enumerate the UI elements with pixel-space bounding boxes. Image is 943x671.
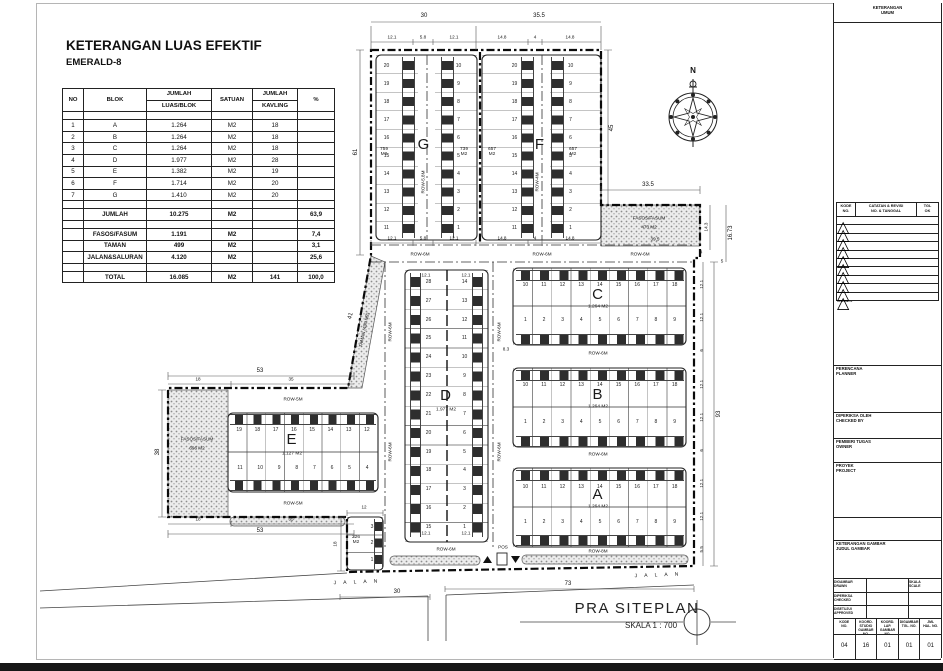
houses-a-bottom <box>516 535 684 546</box>
legend-title: KETERANGAN LUAS EFEKTIF <box>66 38 262 53</box>
dim-top-g: 30 <box>421 13 428 19</box>
row-label: ROW-6M <box>389 442 394 461</box>
dim-e-35b: 35 <box>288 518 293 523</box>
dim-right-93: 93 <box>716 411 722 418</box>
lot-number: 13 <box>578 485 584 490</box>
tb-header: KETERANGAN UMUM <box>834 5 941 15</box>
lot-number: 8 <box>457 100 460 105</box>
lot-number: 18 <box>672 383 678 388</box>
lot-number: 9 <box>463 374 466 379</box>
lot-number: 21 <box>426 412 432 417</box>
dim-label: 6 <box>700 449 705 452</box>
lot-number: 15 <box>616 485 622 490</box>
lot-number: 13 <box>384 190 390 195</box>
lot-number: 4 <box>580 318 583 323</box>
lot-number: 12 <box>560 283 566 288</box>
lots-e-bottom: 1110987654 <box>230 462 376 474</box>
bottom-edge-bar <box>0 663 943 671</box>
lot-number: 4 <box>580 420 583 425</box>
row-label: ROW-6M <box>389 322 394 341</box>
lot-number: 19 <box>426 450 432 455</box>
lots-a-bottom: 123456789 <box>516 516 684 528</box>
dim-e-top-53: 53 <box>257 368 264 374</box>
lot-number: 25 <box>426 336 432 341</box>
grid-row-diperiksa: DIPERIKSACHECKED <box>834 592 941 606</box>
col-no: NO <box>63 89 84 112</box>
revision-row: △ <box>837 266 938 274</box>
lot-number: 11 <box>541 383 546 388</box>
lot-number: 14 <box>384 172 390 177</box>
lot-number: 1 <box>457 226 460 231</box>
lot-number: 9 <box>278 466 281 471</box>
table-row: JALAN&SALURAN4.120 M225,6 <box>63 252 335 264</box>
lot-number: 16 <box>634 383 640 388</box>
dim-8-3: 8.3 <box>503 348 509 353</box>
lot-number: 7 <box>313 466 316 471</box>
lot-number: 7 <box>636 420 639 425</box>
dim-39-5: 39.5 <box>651 238 660 243</box>
col-satuan: SATUAN <box>212 89 253 112</box>
siteplan-sheet: KETERANGAN LUAS EFEKTIF EMERALD-8 NO BLO… <box>0 0 943 671</box>
lot-number: 2 <box>543 318 546 323</box>
area-g1: 759 M2 <box>377 147 391 157</box>
revision-row: △ <box>837 250 938 258</box>
lot-number: 7 <box>636 318 639 323</box>
dim-label: 12.1 <box>700 313 705 322</box>
lots-c-bottom: 123456789 <box>516 314 684 326</box>
table-row: 4D1.977 M228 <box>63 154 335 166</box>
dim-sub: 5.8 <box>420 36 426 41</box>
row-label: ROW-6M <box>588 352 607 357</box>
codes-header-cell: DIGAMBARTGL. NO. <box>899 619 921 635</box>
codes-value-cell: 01 <box>920 635 941 659</box>
dim-d: 12.1 <box>422 274 431 279</box>
dim-sub: 14.8 <box>566 237 575 242</box>
lot-number: 13 <box>346 428 352 433</box>
revision-row: △ <box>837 275 938 283</box>
row-label: ROW-6M <box>498 442 503 461</box>
revision-header: KODENO. CATATAN & REVISINO. & TANGGAL TG… <box>837 203 938 217</box>
dim-label: 5.5 <box>700 546 705 552</box>
col-jumlah1: JUMLAH <box>147 89 212 101</box>
lot-number: 8 <box>569 100 572 105</box>
lot-number: 18 <box>512 100 518 105</box>
section-pemberi-tugas: PEMBERI TUGASOWNER <box>834 438 941 463</box>
lot-number: 8 <box>655 318 658 323</box>
lot-number: 20 <box>512 64 518 69</box>
lot-number: 24 <box>426 355 432 360</box>
section-keterangan-gambar: KETERANGAN GAMBARJUDUL GAMBAR <box>834 540 941 579</box>
lot-number: 18 <box>672 283 678 288</box>
lot-number: 2 <box>463 506 466 511</box>
lot-number: 13 <box>578 383 584 388</box>
lot-number: 6 <box>617 420 620 425</box>
lot-number: 1 <box>524 420 527 425</box>
table-row: 1A1.264 M218 <box>63 120 335 132</box>
houses-d-left <box>410 273 421 537</box>
lot-number: 6 <box>331 466 334 471</box>
row-label: ROW-5M <box>283 502 302 507</box>
lot-number: 9 <box>569 82 572 87</box>
lot-number: 8 <box>655 420 658 425</box>
lot-number: 14 <box>462 280 468 285</box>
codes-header-cell: KOORD. LAP.GAMBAR NO. <box>877 619 899 635</box>
block-d-label: D <box>440 388 452 404</box>
lot-number: 16 <box>512 136 518 141</box>
dim-4: 4 <box>700 251 703 256</box>
col-luas-blok: LUAS/BLOK <box>147 100 212 112</box>
table-row <box>63 112 335 120</box>
lot-number: 7 <box>463 412 466 417</box>
tb-header-line2: UMUM <box>834 10 941 15</box>
lot-number: 5 <box>599 318 602 323</box>
dim-e-bot-53: 53 <box>257 528 264 534</box>
compass-icon <box>669 79 717 147</box>
gate-arrow-out <box>511 556 520 563</box>
lot-number: 10 <box>462 355 468 360</box>
codes-header-row: KODENO.KOORD. STUDIOGAMBAR NO.KOORD. LAP… <box>834 618 941 635</box>
area-f2: 657 M2 <box>566 147 580 157</box>
section-perencana: PERENCANAPLANNER <box>834 365 941 413</box>
area-c: 1.264 M2 <box>588 304 608 309</box>
dim-sub: 4 <box>534 36 537 41</box>
table-row: 7G1.410 M220 <box>63 189 335 201</box>
dim-5: 5 <box>721 260 724 265</box>
lot-number: 18 <box>426 468 432 473</box>
row-label: ROW-6M <box>498 322 503 341</box>
dim-sub: 5.8 <box>420 237 426 242</box>
row-label: ROW-8M <box>588 550 607 555</box>
lot-number: 6 <box>617 318 620 323</box>
lot-number: 5 <box>599 520 602 525</box>
lot-number: 1 <box>524 520 527 525</box>
block-a-label: A <box>592 487 603 503</box>
revision-row: △ <box>837 292 938 300</box>
lots-f-left: 20191817161514131211 <box>508 57 521 238</box>
row-label: ROW-6M <box>630 253 649 258</box>
col-blok: BLOK <box>84 89 147 112</box>
revision-row: △ <box>837 233 938 241</box>
lot-number: 14 <box>512 172 518 177</box>
lot-number: 15 <box>309 428 315 433</box>
revision-rows: △△△△△△△△△△ <box>837 217 938 300</box>
table-row: 2B1.264 M218 <box>63 131 335 143</box>
row-label: ROW-6M <box>532 253 551 258</box>
lot-number: 2 <box>457 208 460 213</box>
digambar-value <box>867 579 909 593</box>
revision-row: △ <box>837 224 938 232</box>
lot-number: 6 <box>463 431 466 436</box>
lot-number: 5 <box>599 420 602 425</box>
dim-e-left-38: 38 <box>155 449 161 456</box>
grid-row-digambar: DIGAMBARDRAWN SKALASCALE <box>834 578 941 593</box>
revision-table: KODENO. CATATAN & REVISINO. & TANGGAL TG… <box>836 202 939 301</box>
dim-label: 6 <box>700 349 705 352</box>
table-row: 5E1.382 M219 <box>63 166 335 178</box>
houses-g-left <box>402 57 415 238</box>
fasos-left <box>168 390 228 517</box>
dim-side-18: 18 <box>334 541 339 546</box>
dim-label: 12.1 <box>700 379 705 388</box>
lot-number: 16 <box>426 506 432 511</box>
row-label: ROW-6M <box>436 548 455 553</box>
dim-sub: 12.1 <box>450 237 459 242</box>
lot-number: 12 <box>560 485 566 490</box>
dim-label: 12.1 <box>700 413 705 422</box>
block-b-label: B <box>592 387 603 403</box>
area-a: 1.264 M2 <box>588 504 608 509</box>
table-row: TOTAL16.085 M2141100,0 <box>63 271 335 283</box>
lot-number: 7 <box>636 520 639 525</box>
rev-col-kode: KODENO. <box>837 203 856 216</box>
right-edge-dims: 12.112.1612.112.1612.112.15.5 <box>697 268 708 566</box>
lot-number: 16 <box>634 485 640 490</box>
area-e: 1.127 M2 <box>282 451 302 456</box>
lot-number: 12 <box>364 428 370 433</box>
dim-sub: 14.8 <box>566 36 575 41</box>
lot-number: 11 <box>237 466 242 471</box>
area-d: 1.977 M2 <box>436 407 456 412</box>
dim-16-73: 16.73 <box>728 225 734 240</box>
lot-number: 18 <box>255 428 261 433</box>
codes-value-cell: 01 <box>899 635 921 659</box>
revision-row: △ <box>837 258 938 266</box>
lot-number: 12 <box>512 208 518 213</box>
dim-bot-30: 30 <box>394 589 401 595</box>
block-f-label: F <box>535 137 545 153</box>
dim-left-61: 61 <box>353 149 359 156</box>
lot-number: 15 <box>512 154 518 159</box>
lot-number: 12 <box>384 208 390 213</box>
lot-number: 20 <box>384 64 390 69</box>
table-row: JUMLAH10.275 M263,9 <box>63 209 335 221</box>
lot-number: 6 <box>457 136 460 141</box>
dim-bot-73: 73 <box>565 581 572 587</box>
dim-e-18b: 18 <box>195 518 200 523</box>
lot-number: 11 <box>512 226 517 231</box>
dim-side-12: 12 <box>361 506 366 511</box>
dim-sub: 12.1 <box>388 36 397 41</box>
dim-d: 12.1 <box>462 532 471 537</box>
lot-number: 19 <box>236 428 242 433</box>
lot-number: 11 <box>384 226 389 231</box>
section-diperiksa: DIPERIKSA OLEHCHECKED BY <box>834 412 941 439</box>
lot-number: 17 <box>653 283 659 288</box>
row-label-f: ROW-4M <box>536 172 541 191</box>
lot-number: 2 <box>371 541 374 546</box>
lot-number: 17 <box>653 383 659 388</box>
houses-c-bottom <box>516 334 684 345</box>
lot-number: 17 <box>384 118 390 123</box>
lots-d-right: 1413121110987654321 <box>458 273 471 537</box>
table-row: 3C1.264 M218 <box>63 143 335 155</box>
table-row: FASOS/FASUM1.191 M27,4 <box>63 228 335 240</box>
lot-number: 4 <box>366 466 369 471</box>
lot-number: 8 <box>463 393 466 398</box>
lot-number: 6 <box>569 136 572 141</box>
table-row <box>63 220 335 228</box>
revision-row: △ <box>837 241 938 249</box>
area-table: NO BLOK JUMLAH SATUAN JUMLAH % LUAS/BLOK… <box>62 88 335 283</box>
area-side: 226 M2 <box>349 535 363 545</box>
area-g2: 739 M2 <box>457 147 471 157</box>
fasos-left-area: 696 M2 <box>189 447 204 452</box>
lot-number: 17 <box>426 487 432 492</box>
lot-number: 14 <box>328 428 334 433</box>
houses-e-bottom <box>230 480 376 491</box>
codes-header-cell: JMLHAL. NO. <box>920 619 941 635</box>
lot-number: 1 <box>524 318 527 323</box>
lot-number: 15 <box>616 283 622 288</box>
row-label: ROW-6M <box>588 453 607 458</box>
lot-number: 4 <box>569 172 572 177</box>
houses-d-right <box>472 273 483 537</box>
north-label: N <box>690 67 696 75</box>
col-jumlah2: JUMLAH <box>253 89 298 101</box>
dim-d: 12.1 <box>462 274 471 279</box>
row-label-g: ROW-5.8M <box>422 171 427 194</box>
codes-header-cell: KOORD. STUDIOGAMBAR NO. <box>856 619 878 635</box>
dim-14-3: 14.3 <box>705 223 710 232</box>
lot-number: 2 <box>543 520 546 525</box>
dim-sub: 12.1 <box>450 36 459 41</box>
codes-value-row: 0416010101 <box>834 634 941 660</box>
lot-number: 7 <box>457 118 460 123</box>
fasos-right-label: FASOS/FASUM <box>633 217 665 222</box>
lot-number: 12 <box>462 318 468 323</box>
lot-number: 3 <box>457 190 460 195</box>
row-label: ROW-5M <box>283 398 302 403</box>
table-row: 6F1.714 M220 <box>63 178 335 190</box>
rev-col-tgl: TGLOK <box>917 203 938 216</box>
lot-number: 10 <box>257 466 263 471</box>
section-proyek: PROYEKPROJECT EMERALD8 T o w n h o u s e… <box>834 462 941 518</box>
lot-number: 3 <box>561 520 564 525</box>
lot-number: 9 <box>673 318 676 323</box>
block-g-label: G <box>418 137 431 153</box>
lot-number: 18 <box>384 100 390 105</box>
section-empty <box>834 517 941 541</box>
block-e-label: E <box>286 432 297 448</box>
codes-value-cell: 04 <box>834 635 856 659</box>
lot-number: 3 <box>371 525 374 530</box>
title-block: KETERANGAN UMUM KODENO. CATATAN & REVISI… <box>833 3 942 658</box>
lot-number: 2 <box>543 420 546 425</box>
median-strip-1 <box>390 556 480 565</box>
lot-number: 20 <box>426 431 432 436</box>
codes-value-cell: 01 <box>877 635 899 659</box>
lot-number: 13 <box>512 190 518 195</box>
houses-f-right <box>551 57 564 238</box>
legend-subtitle: EMERALD-8 <box>66 57 121 68</box>
lot-number: 15 <box>426 525 432 530</box>
revision-row: △ <box>837 283 938 291</box>
dim-top-f: 35.5 <box>533 13 545 19</box>
lots-d-left: 2827262524232221201918171615 <box>422 273 435 537</box>
lot-number: 5 <box>348 466 351 471</box>
lot-number: 3 <box>561 318 564 323</box>
dim-label: 12.1 <box>700 280 705 289</box>
revision-row: △ <box>837 217 938 224</box>
lot-number: 9 <box>457 82 460 87</box>
lot-number: 12 <box>560 383 566 388</box>
dim-label: 12.1 <box>700 512 705 521</box>
lot-number: 2 <box>569 208 572 213</box>
area-b: 1.264 M2 <box>588 404 608 409</box>
pos-gate <box>483 553 520 565</box>
lot-number: 1 <box>569 226 572 231</box>
median-strip-2 <box>522 555 688 564</box>
lot-number: 13 <box>462 299 468 304</box>
lot-number: 9 <box>673 520 676 525</box>
drawing-title: PRA SITEPLAN <box>575 601 700 617</box>
lot-number: 16 <box>384 136 390 141</box>
lot-number: 18 <box>672 485 678 490</box>
lot-number: 3 <box>569 190 572 195</box>
lot-number: 1 <box>371 558 374 563</box>
pos-label: POS <box>498 546 508 551</box>
dim-e-35: 35 <box>288 378 293 383</box>
lot-number: 17 <box>273 428 279 433</box>
dim-sub: 12.1 <box>388 237 397 242</box>
dim-sub: 4 <box>534 237 537 242</box>
table-row: TAMAN499 M23,1 <box>63 240 335 252</box>
lot-number: 22 <box>426 393 432 398</box>
lot-number: 5 <box>463 450 466 455</box>
codes-value-cell: 16 <box>856 635 878 659</box>
lot-number: 10 <box>523 283 529 288</box>
lot-number: 10 <box>568 64 574 69</box>
lot-number: 3 <box>561 420 564 425</box>
tb-header-rule <box>834 22 941 23</box>
lot-number: 8 <box>655 520 658 525</box>
lot-number: 10 <box>456 64 462 69</box>
table-row <box>63 201 335 209</box>
codes-header-cell: KODENO. <box>834 619 856 635</box>
lot-number: 4 <box>463 468 466 473</box>
grid-row-disetujui: DISETUJUIAPPROVED <box>834 605 941 619</box>
houses-b-bottom <box>516 436 684 447</box>
lot-number: 15 <box>616 383 622 388</box>
rev-col-catatan: CATATAN & REVISINO. & TANGGAL <box>856 203 917 216</box>
fasos-left-label: FASOS/FASUM <box>181 438 213 443</box>
lot-number: 3 <box>463 487 466 492</box>
lot-number: 17 <box>653 485 659 490</box>
lot-number: 17 <box>512 118 518 123</box>
dim-right-45: 45 <box>609 125 615 132</box>
col-pct: % <box>298 89 335 112</box>
lot-number: 19 <box>384 82 390 87</box>
lot-number: 23 <box>426 374 432 379</box>
area-f1: 657 M2 <box>485 147 499 157</box>
lot-number: 1 <box>463 525 466 530</box>
dim-sub: 14.8 <box>498 237 507 242</box>
lot-number: 10 <box>523 485 529 490</box>
houses-a-top <box>516 470 684 481</box>
dim-fasos-33-5: 33.5 <box>642 182 654 188</box>
lot-number: 6 <box>617 520 620 525</box>
fasos-right-area: 473 M2 <box>641 226 656 231</box>
lot-number: 27 <box>426 299 432 304</box>
lot-number: 9 <box>673 420 676 425</box>
row-label: ROW-6M <box>410 253 429 258</box>
lot-number: 19 <box>512 82 518 87</box>
lot-number: 13 <box>578 283 584 288</box>
gate-arrow-in <box>483 556 492 563</box>
lot-number: 16 <box>634 283 640 288</box>
lots-b-bottom: 123456789 <box>516 416 684 428</box>
dim-d: 12.1 <box>422 532 431 537</box>
